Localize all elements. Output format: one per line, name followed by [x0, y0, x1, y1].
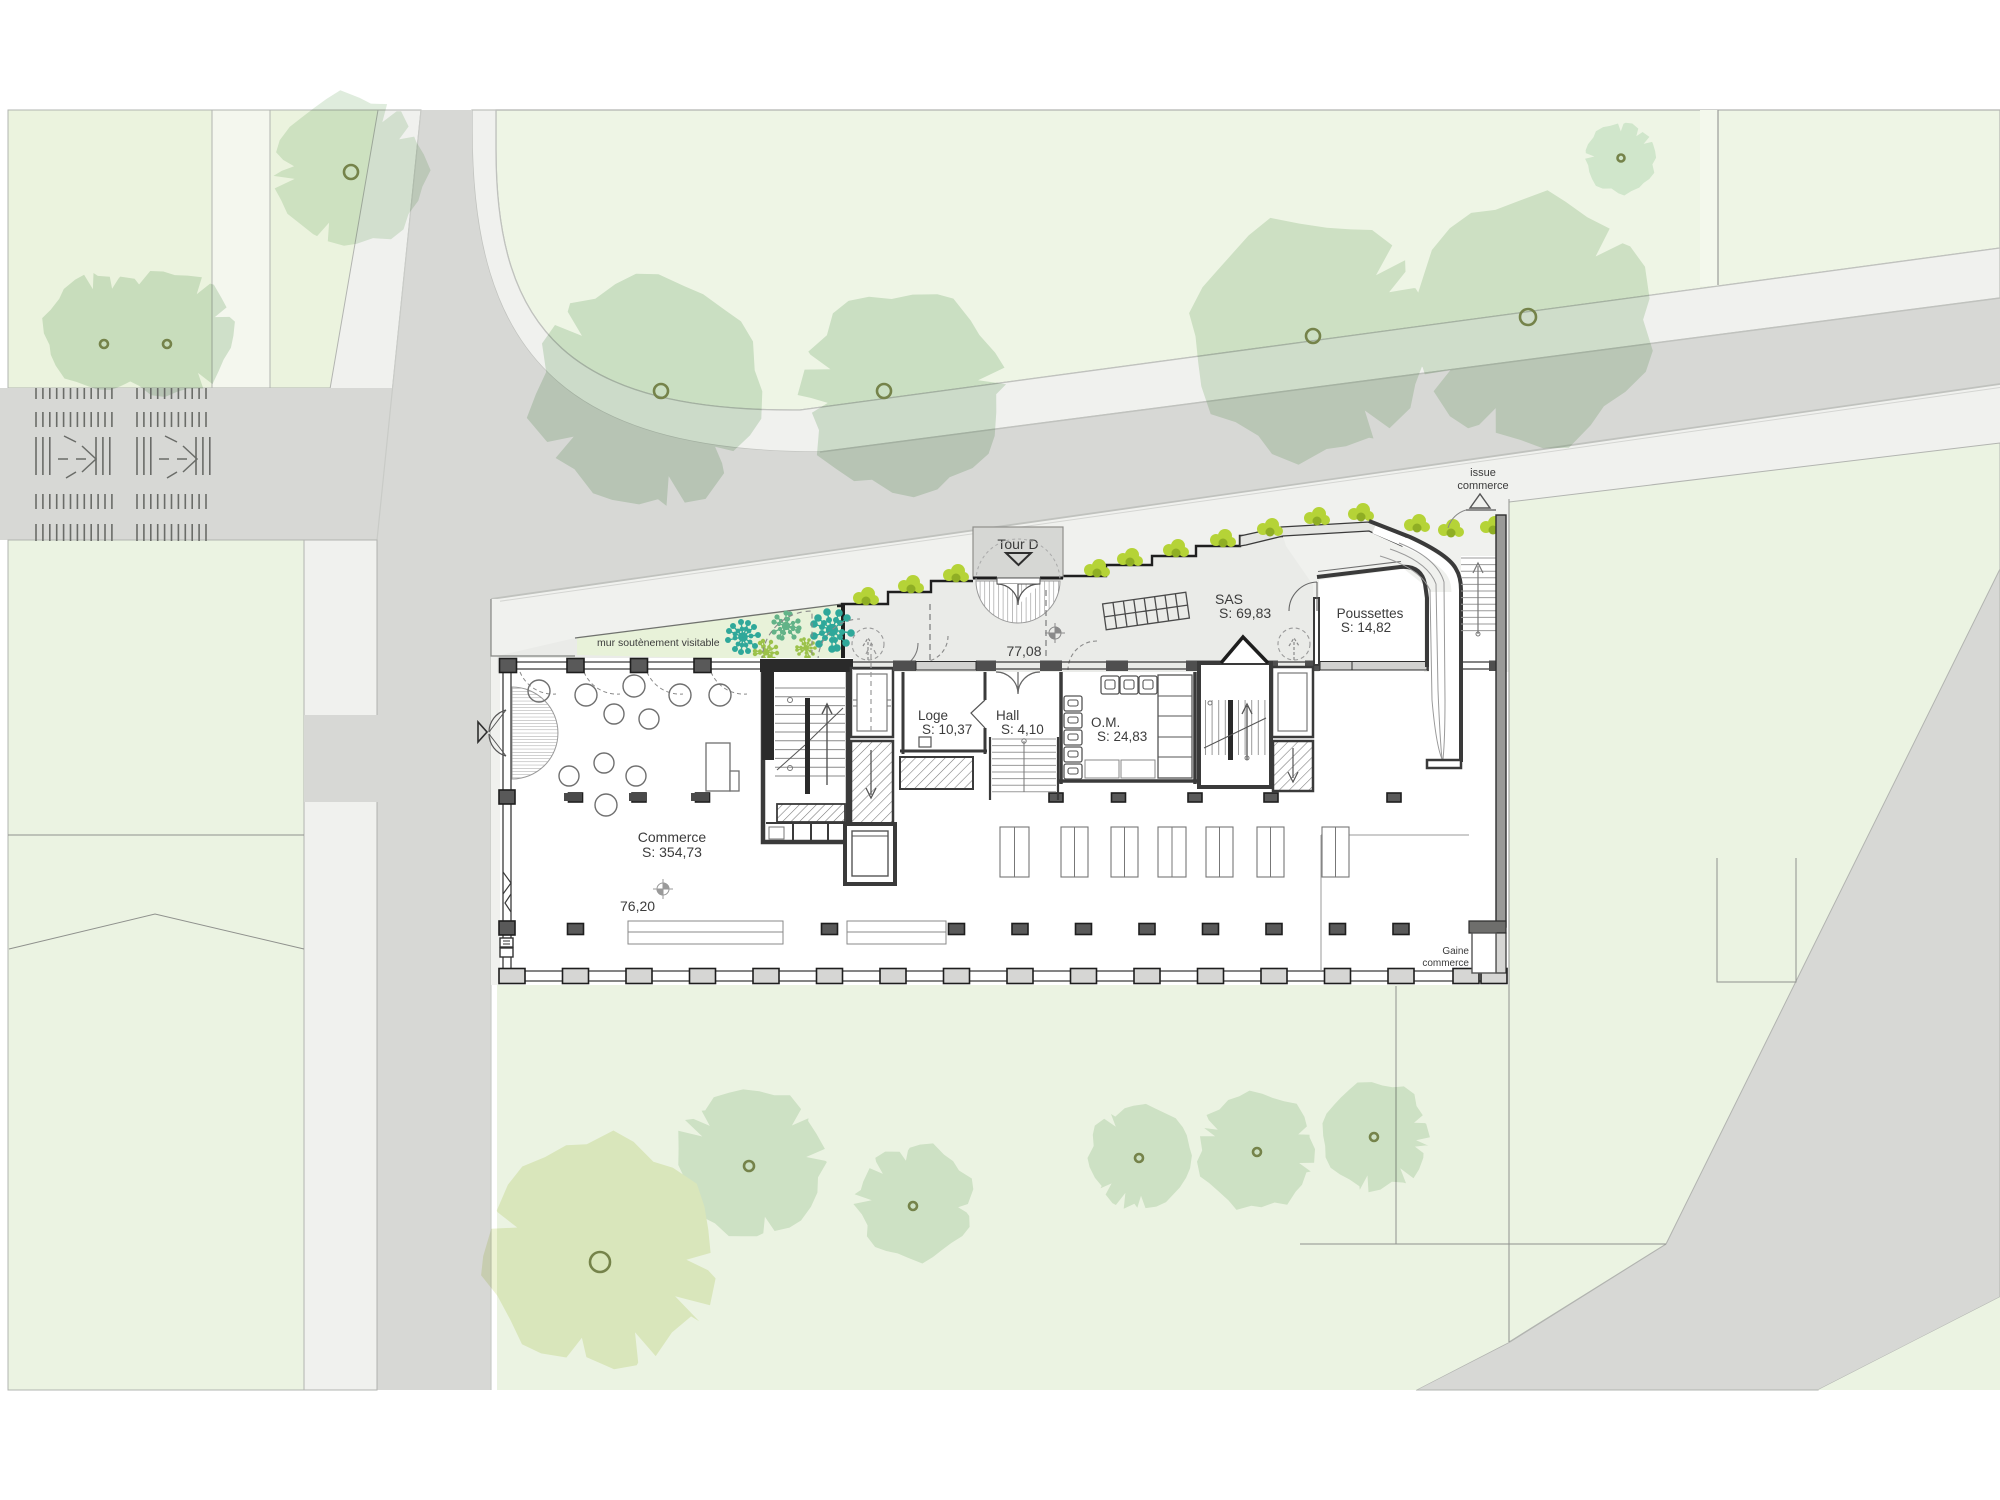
svg-text:mur soutènement visitable: mur soutènement visitable: [597, 637, 720, 649]
svg-text:Loge: Loge: [918, 708, 948, 723]
svg-text:S: 354,73: S: 354,73: [642, 844, 702, 860]
svg-text:Poussettes: Poussettes: [1337, 606, 1404, 621]
svg-text:77,08: 77,08: [1006, 643, 1041, 659]
svg-text:S: 4,10: S: 4,10: [1001, 722, 1044, 737]
svg-text:S: 10,37: S: 10,37: [922, 722, 972, 737]
svg-text:Commerce: Commerce: [638, 829, 707, 845]
svg-text:commerce: commerce: [1422, 958, 1469, 969]
svg-text:issue: issue: [1470, 467, 1496, 479]
svg-text:Tour D: Tour D: [997, 536, 1038, 552]
svg-text:S: 24,83: S: 24,83: [1097, 729, 1147, 744]
svg-text:Gaine: Gaine: [1442, 946, 1469, 957]
svg-text:76,20: 76,20: [620, 898, 655, 914]
svg-text:S: 14,82: S: 14,82: [1341, 620, 1391, 635]
svg-text:O.M.: O.M.: [1091, 715, 1120, 730]
svg-text:commerce: commerce: [1457, 480, 1508, 492]
svg-text:S: 69,83: S: 69,83: [1219, 605, 1271, 621]
svg-text:Hall: Hall: [996, 708, 1019, 723]
